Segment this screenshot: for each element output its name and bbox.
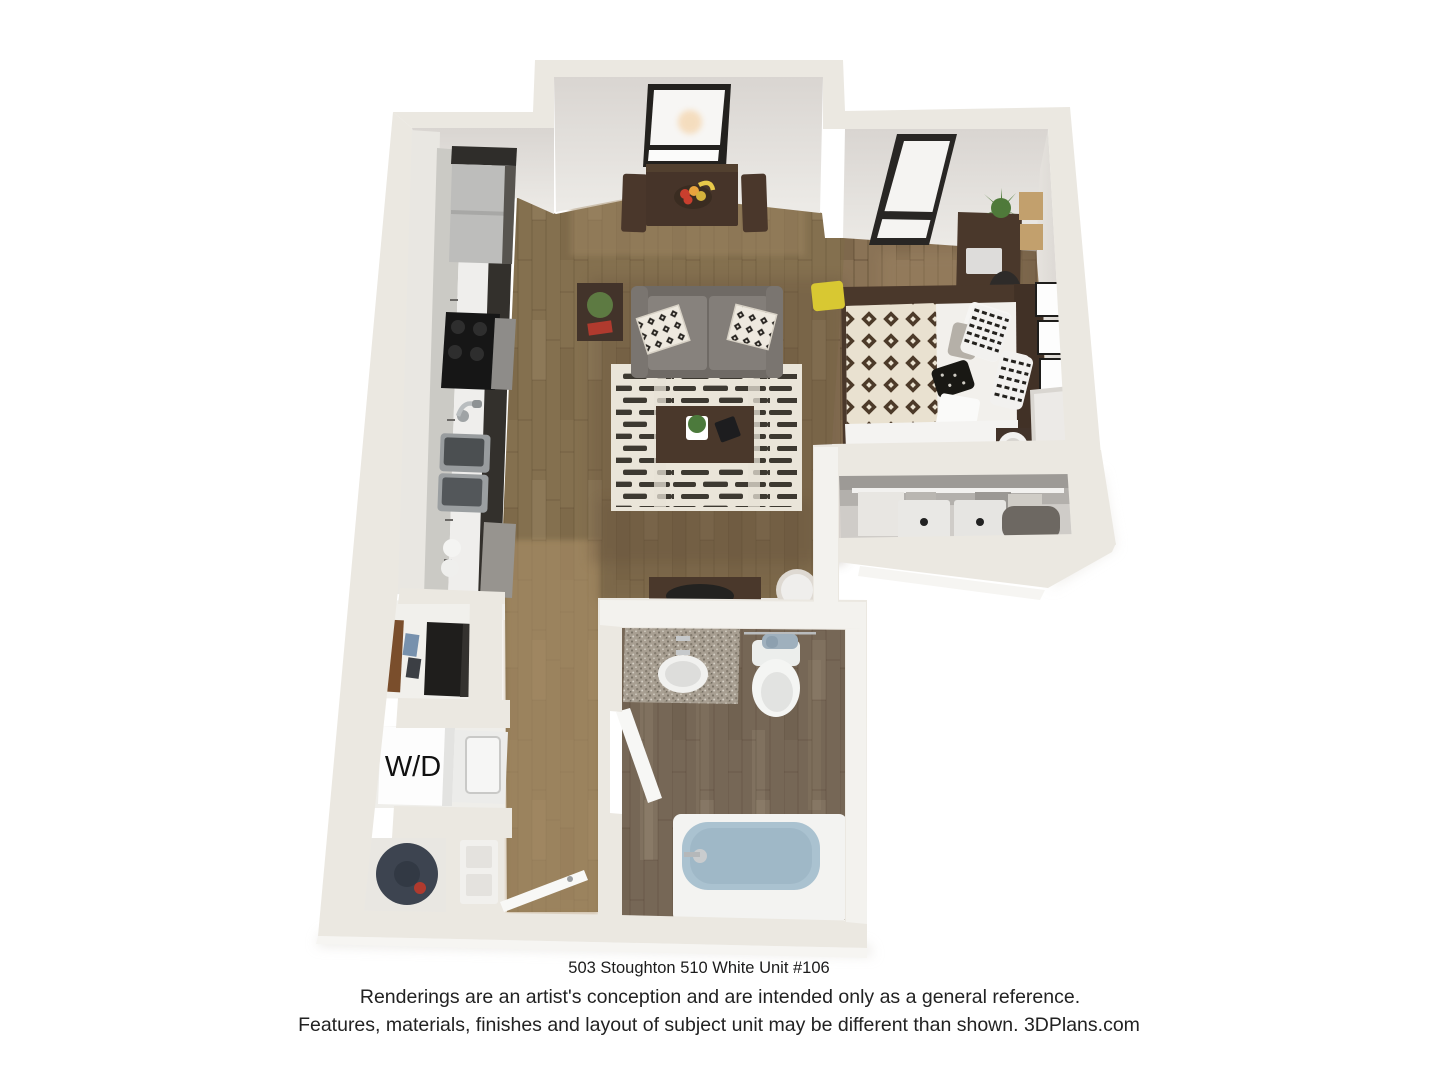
svg-text:W/D: W/D bbox=[385, 751, 441, 783]
